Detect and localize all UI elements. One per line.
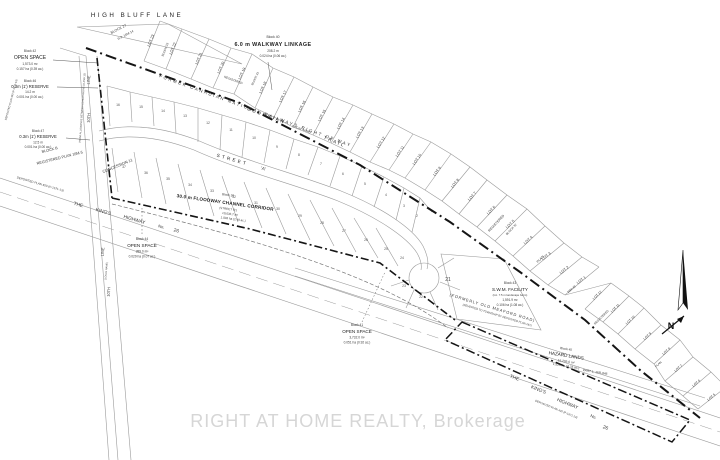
lot-number: 12 xyxy=(206,121,210,125)
lot-number: 32 xyxy=(232,195,236,199)
lot-number: 28 xyxy=(320,221,324,225)
plan-ref-registered: REGISTERED xyxy=(487,213,505,232)
lot-number: 30 xyxy=(276,207,280,211)
plan-ref-block-33: BLOCK 33 xyxy=(161,42,170,57)
block47-title: Block 47 xyxy=(32,129,44,133)
lot-number: 27 xyxy=(342,229,346,233)
block42-length: 1,573.0 m² xyxy=(22,62,37,66)
block47-name: 0.3m (1') RESERVE xyxy=(19,134,57,139)
block39-area: 1.003 ha (2.48 ac.) xyxy=(220,215,245,222)
block41-name: OPEN SPACE xyxy=(342,329,372,334)
heavy-linework xyxy=(86,48,700,442)
block43-area: 0.106 ha (1.08 ac.) xyxy=(497,303,524,307)
survey-plan-map: HIGH BLUFF LANEBLOCK 27R.P. 16M-14FORMER… xyxy=(0,0,720,460)
lot-label: LOT 9 xyxy=(432,166,442,177)
street-label-10th-lower: 10TH xyxy=(106,287,112,297)
street-label-street-a-suffix: 'A' xyxy=(260,165,266,171)
lot-label: LOT 10 xyxy=(625,315,636,326)
hwy26-se-word-kings: KING'S xyxy=(530,384,547,395)
street-label-high-bluff-lane: HIGH BLUFF LANE xyxy=(91,12,183,19)
block41-size: 3,732.0 m² xyxy=(349,336,364,340)
cul-de-sac xyxy=(409,263,439,293)
part1-16r-label: PART 1, 16R-846 xyxy=(583,368,608,376)
lot-label: LOT 6 xyxy=(691,379,701,388)
block42-name: OPEN SPACE xyxy=(14,55,47,61)
lot-number: 8 xyxy=(298,153,300,157)
lot-number: 29 xyxy=(298,214,302,218)
block46-area: 0.001 ha (0.00 ac.) xyxy=(17,95,44,99)
lot-label: LOT 19 xyxy=(238,67,247,80)
lot-label: LOT 20 xyxy=(217,61,226,74)
street-label-10th-localname: (LOCAL NAME) xyxy=(104,262,109,280)
registered-lot-ticks xyxy=(565,283,720,409)
lot-label: LOT 5 xyxy=(706,393,716,402)
block43-name: S.W.M. FACILITY xyxy=(492,287,528,292)
lot-number: 25 xyxy=(384,247,388,251)
block42-leader xyxy=(53,60,98,63)
lot-label: LOT 2 xyxy=(559,265,570,275)
lot-number: 35 xyxy=(166,177,170,181)
block45-area: 1.520 ha (3.76 ac.) xyxy=(553,362,580,370)
lot-number: 23 xyxy=(402,284,406,288)
block41-title: Block 41 xyxy=(351,323,363,327)
floodway-south-edge xyxy=(112,204,448,328)
lot-label: LOT 4 xyxy=(523,235,533,245)
block46-length: 14.2 m xyxy=(25,90,35,94)
block42-title: Block 42 xyxy=(24,49,36,53)
street-label-street-a: STREET xyxy=(216,153,249,167)
block27-wedge xyxy=(77,24,242,64)
lot-label: LOT 22 xyxy=(169,42,177,55)
lot-number: 33 xyxy=(210,189,214,193)
hwy26-se-word-the: THE xyxy=(509,373,520,382)
watermark: RIGHT AT HOME REALTY, Brokerage xyxy=(190,411,525,431)
plan-ref-plan-se: PLAN xyxy=(654,360,663,368)
lot-number: 16 xyxy=(116,103,120,107)
lot-label: LOT 13 xyxy=(355,126,365,139)
lot-label: LOT 10 xyxy=(412,153,423,166)
lot-label: LOT 15 xyxy=(317,109,326,122)
block46-title: Block 46 xyxy=(24,79,36,83)
lot-number: 24 xyxy=(400,256,404,260)
lot-number: 26 xyxy=(364,238,368,242)
lot-label: LOT 12 xyxy=(592,290,603,301)
thin-linework xyxy=(0,21,720,460)
registered-band-sw-edge xyxy=(585,309,698,409)
block43-size: 1,591.9 m² xyxy=(502,298,517,302)
lot-label: LOT 6 xyxy=(486,205,496,215)
north-arrow xyxy=(662,250,688,334)
lot-number: 13 xyxy=(183,114,187,118)
block40-title: Block 40 xyxy=(266,35,279,39)
hwy26-se-word-no: No. xyxy=(590,413,598,420)
block40-name: 6.0 m WALKWAY LINKAGE xyxy=(235,42,312,48)
lot-number: 10 xyxy=(252,136,256,140)
hwy26-se-word-26: 26 xyxy=(602,424,610,432)
lot-number: 37 xyxy=(122,165,126,169)
lot-label: LOT 18 xyxy=(259,81,268,94)
block45-title: Block 45 xyxy=(560,346,573,352)
lot-label: LOT 11 xyxy=(395,145,405,157)
block42-area: 0.157 ha (0.39 ac.) xyxy=(17,67,44,71)
lot-number: 4 xyxy=(385,193,387,197)
lot-label: LOT 7 xyxy=(673,364,683,373)
hwy26-word-26: 26 xyxy=(173,227,180,234)
lot-number: 11 xyxy=(229,128,233,132)
lot-number: 5 xyxy=(364,182,366,186)
block47-length: 12.5 m xyxy=(33,141,43,145)
lot-label: LOT 12 xyxy=(376,136,386,149)
lot-label: LOT 9 xyxy=(643,332,653,341)
lot-number: 9 xyxy=(276,145,278,149)
lot-number: 2 xyxy=(416,214,418,218)
block40-area: 0.024 ha (0.06 ac.) xyxy=(260,54,287,58)
street-label-line-upper: LINE xyxy=(86,75,92,85)
subdivision-west-boundary xyxy=(97,58,112,198)
street-label-line-lower: LINE xyxy=(100,247,106,257)
lot-number: 6 xyxy=(342,172,344,176)
block44-area: 0.029 ha (0.07 ac.) xyxy=(129,255,156,259)
hwy26-word-highway: HIGHWAY xyxy=(123,214,147,226)
plan-ref-block-31: BLOCK 31 xyxy=(250,71,260,86)
block41-leader xyxy=(362,272,385,322)
lot-number: 36 xyxy=(144,171,148,175)
lot-number: 15 xyxy=(139,105,143,109)
lot-label: LOT 11 xyxy=(610,303,621,314)
tenth-line-road xyxy=(60,48,131,460)
lot-number: 14 xyxy=(161,109,165,113)
hwy26-word-the: THE xyxy=(73,201,84,209)
block41-area: 0.051 ha (0.92 ac.) xyxy=(344,341,371,345)
north-arrowhead xyxy=(677,316,684,323)
inner-lot-upper-rear-edge xyxy=(107,86,432,212)
block44-size: 389.0 m² xyxy=(136,250,149,254)
street-label-10th-upper: 10TH xyxy=(86,113,92,123)
block43-title: Block 43 xyxy=(504,281,516,285)
lot-number: 7 xyxy=(320,162,322,166)
hwy26-word-no: No. xyxy=(158,223,166,230)
street-label-georgian: GEORGIAN xyxy=(247,106,287,125)
lot-label: LOT 7 xyxy=(467,191,477,202)
street-label-10th-sub: (ROAD ALLOWANCE BETWEEN CONCESSIONS 10 A… xyxy=(79,73,87,143)
hwy26-word-kings: KING'S xyxy=(95,207,112,217)
lot-number: 22 xyxy=(419,295,423,299)
lot-label: LOT 16 xyxy=(297,100,306,113)
lot-number-21: 21 xyxy=(445,277,451,283)
lot-number: 31 xyxy=(254,201,258,205)
block43-sub: (inc. 7.5 m landscape berm) xyxy=(493,293,528,297)
block46-leader xyxy=(57,87,98,88)
block40-length: 208.2 m xyxy=(267,49,279,53)
lot-label: LOT 8 xyxy=(450,178,460,189)
registered-band-ne-edge xyxy=(611,283,720,387)
lot-label: LOT 1 xyxy=(576,275,587,285)
deposited-plan-label-w: DEPOSITED PLAN 450 (P-1671-13) xyxy=(16,175,64,192)
plan-of-subdivision-drawing: HIGH BLUFF LANEBLOCK 27R.P. 16M-14FORMER… xyxy=(0,0,720,460)
georgian-lot-ticks xyxy=(144,21,599,295)
lot-label: LOT 17 xyxy=(279,90,288,103)
lot-number: 34 xyxy=(188,183,192,187)
block44-title: Block 44 xyxy=(136,237,148,241)
lot-label: LOT 14 xyxy=(336,117,346,130)
north-letter: N xyxy=(668,321,675,331)
lot-number: 3 xyxy=(403,204,405,208)
lot-label: LOT 23 xyxy=(147,34,155,47)
lot-label: LOT 8 xyxy=(662,347,672,356)
block44-name: OPEN SPACE xyxy=(127,243,157,248)
